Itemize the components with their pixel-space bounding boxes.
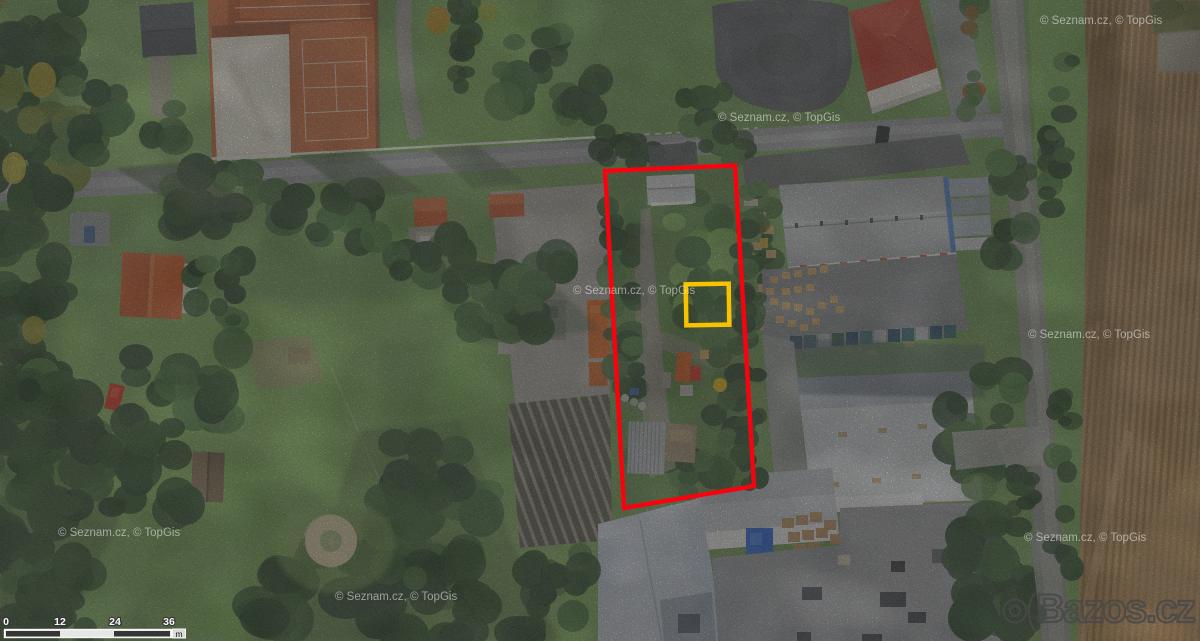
svg-text:12: 12	[54, 616, 66, 628]
svg-text:© Seznam.cz, © TopGis: © Seznam.cz, © TopGis	[1024, 532, 1146, 544]
svg-text:© Seznam.cz, © TopGis: © Seznam.cz, © TopGis	[58, 527, 180, 539]
svg-text:© Seznam.cz, © TopGis: © Seznam.cz, © TopGis	[335, 591, 457, 603]
svg-text:36: 36	[163, 616, 175, 628]
svg-text:0: 0	[3, 616, 9, 628]
svg-text:© Seznam.cz, © TopGis: © Seznam.cz, © TopGis	[573, 285, 695, 297]
svg-text:m: m	[175, 629, 182, 639]
svg-text:© Seznam.cz, © TopGis: © Seznam.cz, © TopGis	[718, 112, 840, 124]
svg-text:24: 24	[109, 616, 121, 628]
svg-text:Bazos.cz: Bazos.cz	[1036, 587, 1195, 631]
svg-text:© Seznam.cz, © TopGis: © Seznam.cz, © TopGis	[1040, 15, 1162, 27]
svg-text:© Seznam.cz, © TopGis: © Seznam.cz, © TopGis	[1028, 329, 1150, 341]
